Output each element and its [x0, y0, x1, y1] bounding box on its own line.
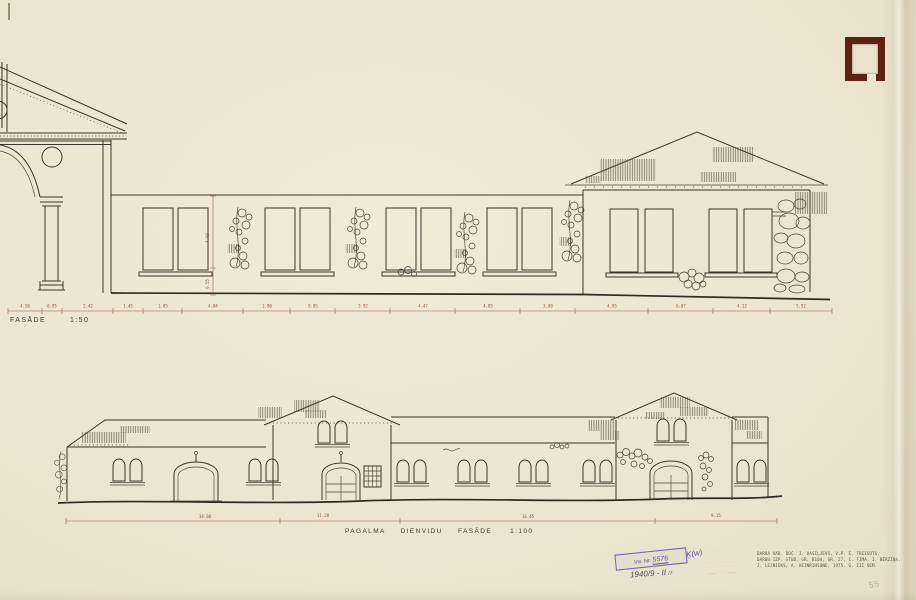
dimension-label: 0.95 [47, 304, 57, 309]
dimension-label: 3.92 [358, 304, 368, 309]
dimension-label: 3.80 [543, 304, 553, 309]
dimension-label: 6.07 [676, 304, 686, 309]
dimension-label: 4.04 [208, 304, 218, 309]
top-elevation-scale: 1:50 [70, 317, 89, 324]
dimension-label: 16.45 [522, 514, 535, 519]
dimension-label: 4.08 [205, 233, 210, 243]
bottom-elevation-title: PAGALMA DIENVIDU FASĀDE 1:100 [345, 528, 533, 535]
dimension-label: 4.12 [737, 304, 747, 309]
bottom-elevation [55, 393, 782, 503]
dimension-label: 0.95 [308, 304, 318, 309]
inventory-number: 5576 [652, 555, 668, 565]
bottom-dimension-line: 34.80 11.28 16.45 9.15 [66, 513, 777, 524]
credits-line: DARBA VAD. DOC. J. VASIĻJEVS, V.P. E. TR… [757, 551, 875, 557]
top-elevation-label: FASĀDE [10, 317, 46, 324]
top-dimension-line: 4.50 0.95 2.42 1.45 1.85 4.04 1.90 0.95 … [8, 304, 832, 315]
inventory-number-label: Inv. Nr. [634, 558, 652, 566]
corner-mark [845, 37, 885, 81]
credits-line: DARBU IZP. STUD. GR. B104, GR. 27, I. TI… [757, 557, 875, 563]
elevation-line-art: 4.50 0.95 2.42 1.45 1.85 4.04 1.90 0.95 … [0, 0, 916, 600]
dimension-label: 0.55 [205, 279, 210, 289]
top-elevation-title: FASĀDE 1:50 [10, 317, 89, 324]
vertical-dimension-line: 4.08 0.55 [205, 196, 216, 295]
dimension-label: 9.15 [711, 513, 721, 518]
dimension-label: 1.90 [262, 304, 272, 309]
bottom-elevation-label: PAGALMA DIENVIDU FASĀDE [345, 528, 492, 535]
dimension-label: 34.80 [199, 514, 212, 519]
handwritten-suffix: /7 [668, 571, 673, 577]
dimension-label: 1.45 [123, 304, 133, 309]
red-stamp: · · · · · · · · · · · · · · · · · · · · … [689, 548, 756, 577]
dimension-label: 4.85 [483, 304, 493, 309]
dimension-label: 11.28 [317, 513, 330, 518]
dimension-label: 1.85 [158, 304, 168, 309]
dimension-label: 4.50 [20, 304, 30, 309]
credits-block: DARBA VAD. DOC. J. VASIĻJEVS, V.P. E. TR… [757, 551, 875, 568]
credits-line: J. LEJNIEKS, A. HEINRIHSONE, 1975. G. II… [757, 563, 875, 569]
drawing-sheet: 4.50 0.95 2.42 1.45 1.85 4.04 1.90 0.95 … [0, 0, 916, 600]
top-elevation [0, 3, 830, 300]
paper-edge-shadow [0, 590, 916, 600]
dimension-label: 4.47 [418, 304, 428, 309]
bottom-elevation-scale: 1:100 [510, 528, 533, 535]
dimension-label: 4.95 [607, 304, 617, 309]
dimension-label: 2.42 [83, 304, 93, 309]
dimension-label: 5.52 [796, 304, 806, 309]
